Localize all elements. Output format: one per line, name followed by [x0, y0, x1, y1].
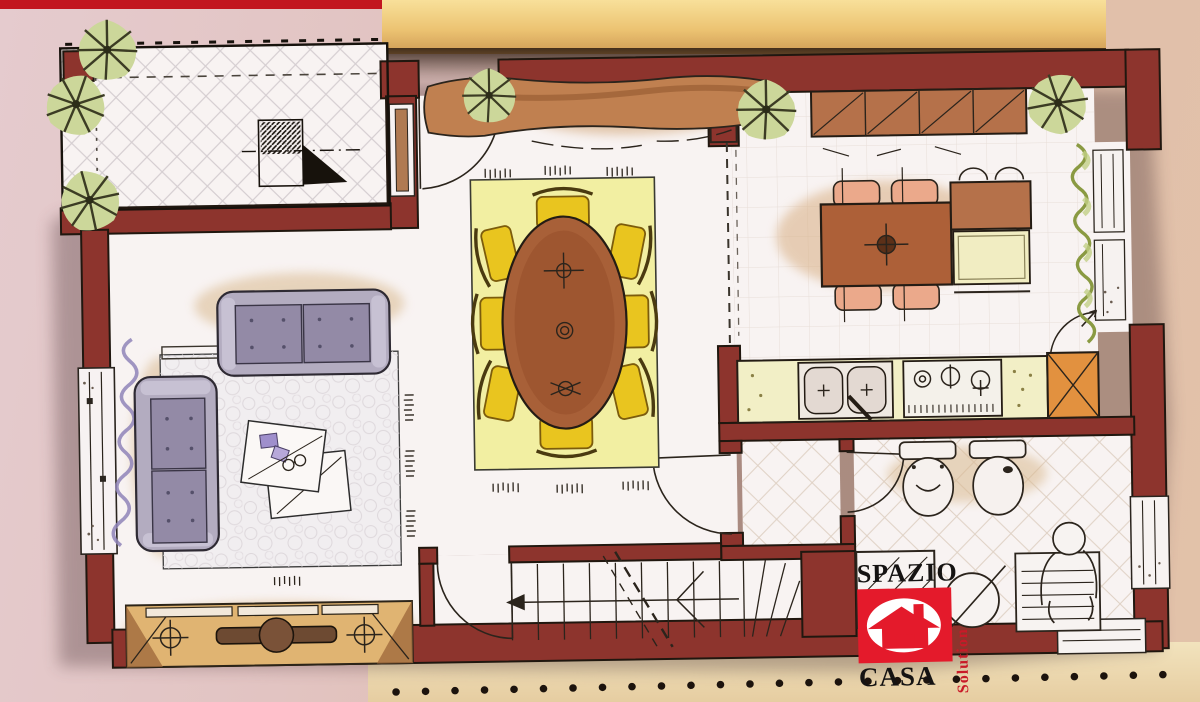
terrace-plant-1 — [77, 19, 138, 80]
tall-corner-unit — [1047, 352, 1099, 418]
appliance — [953, 230, 1030, 284]
coffee-table-1 — [241, 421, 326, 492]
logo-word-solution: Solution — [953, 589, 971, 693]
kitchen-chair — [835, 284, 881, 311]
hob — [903, 360, 1002, 418]
floor-plan-drawing — [0, 0, 1200, 702]
bathroom-window — [1130, 496, 1169, 589]
sofa-three-seat — [217, 289, 390, 376]
toilet — [969, 440, 1026, 515]
tv-sideboard — [126, 601, 413, 667]
logo-word-spazio: SPAZIO — [857, 559, 988, 588]
top-gold-band — [382, 0, 1106, 54]
sofa-two-seat — [134, 376, 219, 551]
dining-terrace-window — [389, 104, 414, 196]
double-sink — [798, 361, 893, 420]
floor-plan-photo: SPAZIO CASA Solution — [0, 0, 1200, 702]
logo-house-icon — [857, 587, 953, 663]
top-red-strip — [0, 0, 400, 9]
kitchen-counter — [737, 352, 1099, 423]
kitchen-island — [950, 167, 1032, 292]
bidet — [899, 441, 956, 516]
floor-plan — [36, 3, 1174, 685]
kitchen-chair — [893, 283, 939, 310]
living-window — [78, 368, 117, 555]
spazio-casa-logo: SPAZIO CASA Solution — [857, 559, 990, 702]
